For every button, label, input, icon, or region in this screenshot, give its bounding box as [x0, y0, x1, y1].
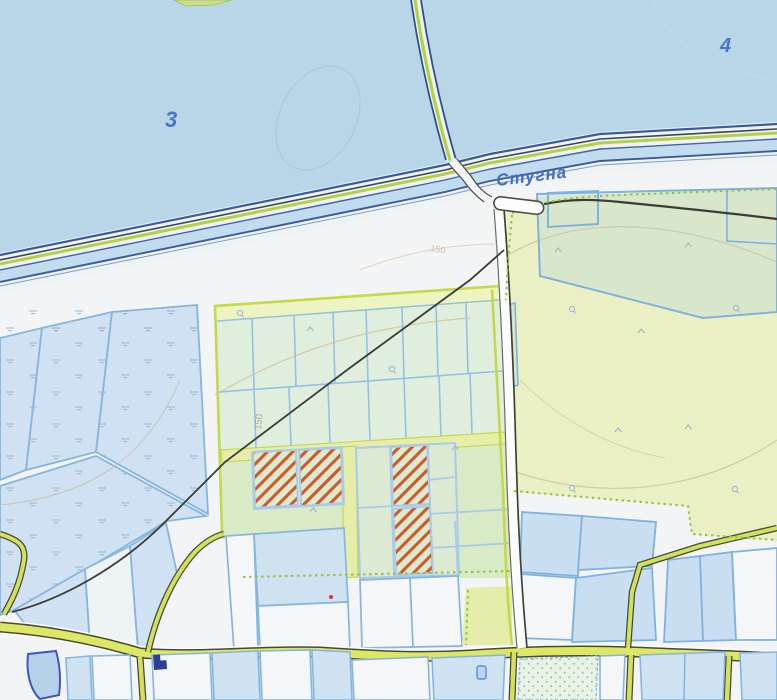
hatched-parcel-2[interactable]	[299, 448, 343, 506]
parcel	[518, 574, 576, 640]
building-small	[477, 666, 486, 679]
hatched-subblock-left	[252, 447, 344, 509]
parcel	[352, 657, 430, 700]
water-label-3: 3	[165, 107, 177, 132]
parcel	[432, 655, 505, 700]
parcel	[640, 652, 725, 700]
water-label-4: 4	[719, 35, 731, 57]
hatched-parcel-1[interactable]	[253, 450, 298, 508]
parcel	[254, 528, 348, 606]
hatched-parcel-4[interactable]	[393, 506, 433, 575]
parcel	[92, 655, 132, 700]
contour-label-150: 150	[253, 414, 265, 431]
parcel	[312, 650, 352, 700]
parcel	[260, 650, 312, 700]
map-viewport[interactable]: 150	[0, 0, 777, 700]
orchard-texture	[518, 656, 598, 700]
parcel	[732, 548, 777, 640]
street-parcels-south	[66, 650, 777, 700]
parcel	[600, 655, 625, 700]
parcel	[66, 656, 92, 700]
map-canvas[interactable]: 150	[0, 0, 777, 700]
parcel	[740, 652, 777, 700]
hatched-parcel-3[interactable]	[391, 445, 430, 506]
parcel	[572, 568, 656, 642]
parcel	[152, 653, 212, 700]
parcel	[212, 651, 260, 700]
green-patch-west-of-road	[462, 586, 512, 645]
parcel	[520, 512, 582, 576]
red-marker	[329, 595, 333, 599]
parcel	[258, 602, 350, 650]
